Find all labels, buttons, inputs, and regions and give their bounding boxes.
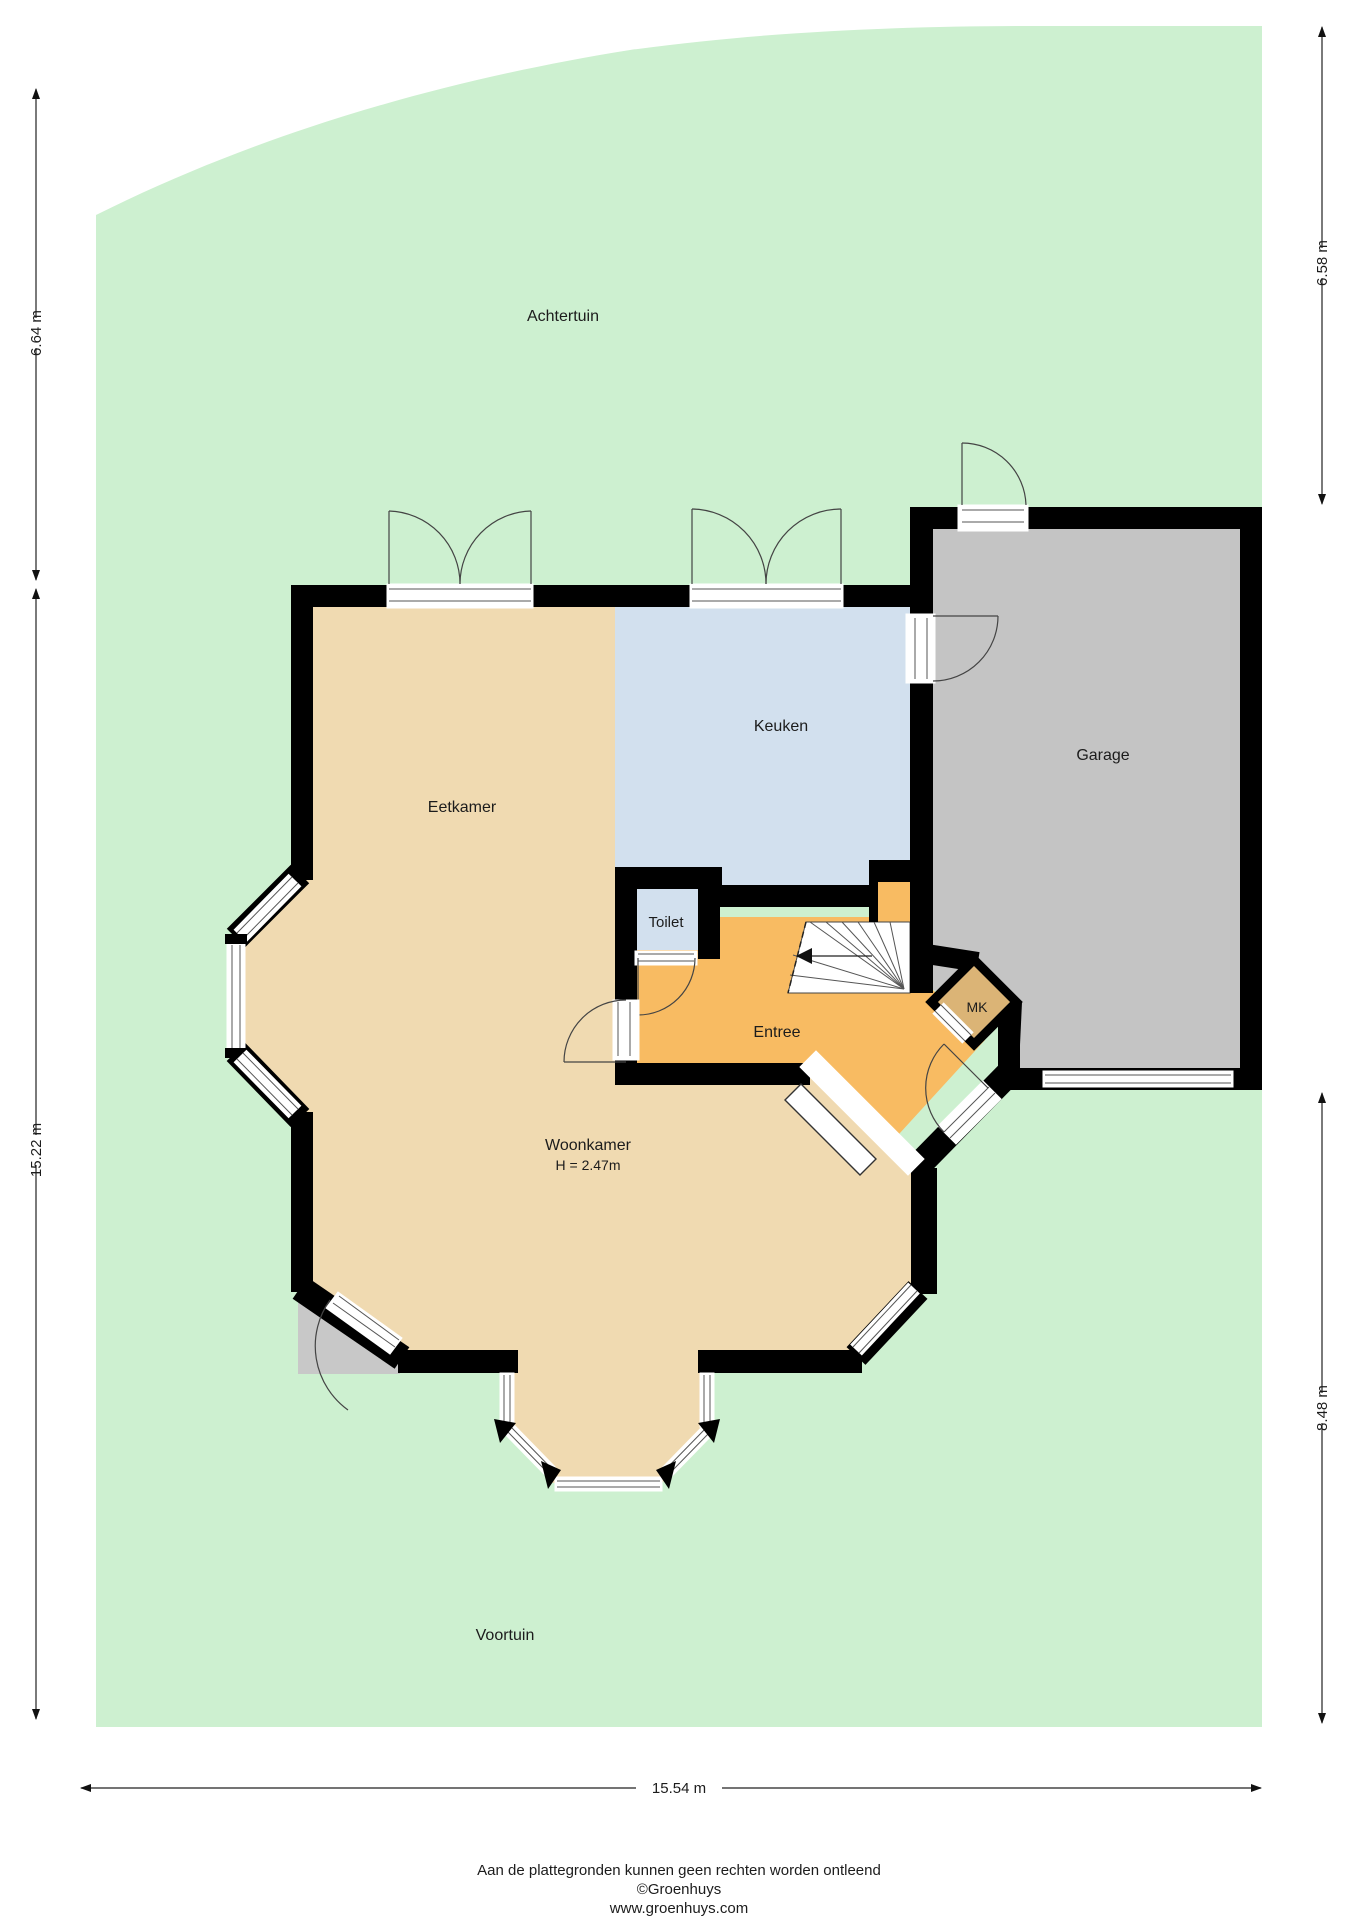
dim-left-upper: 6.64 m	[28, 310, 45, 356]
label-mk: MK	[967, 999, 989, 1015]
dim-right-lower: 8.48 m	[1314, 1385, 1331, 1431]
wall-south-left	[398, 1350, 518, 1373]
floorplan-page: Achtertuin Voortuin Eetkamer Keuken Gara…	[0, 0, 1358, 1920]
dim-right-upper: 6.58 m	[1314, 240, 1331, 286]
dim-left-lower: 15.22 m	[28, 1123, 45, 1177]
footer-website: www.groenhuys.com	[609, 1900, 748, 1917]
label-entree: Entree	[753, 1024, 800, 1041]
floorplan-drawing: Achtertuin Voortuin Eetkamer Keuken Gara…	[0, 0, 1358, 1920]
wall-toilet-right	[698, 867, 720, 959]
room-fill-keuken	[615, 595, 910, 893]
window-bay-right	[700, 1373, 714, 1427]
wall-west-upper	[291, 585, 313, 880]
wall-keuken-garage	[910, 507, 933, 993]
wall-entree-south	[615, 1063, 810, 1085]
label-woonkamer: Woonkamer	[545, 1137, 632, 1154]
window-bay-left	[500, 1373, 514, 1427]
wall-west-lower	[291, 1112, 313, 1292]
label-voortuin: Voortuin	[476, 1627, 535, 1644]
footer: Aan de plattegronden kunnen geen rechten…	[477, 1862, 881, 1917]
window-west-vertical	[225, 934, 247, 1058]
label-toilet: Toilet	[648, 914, 684, 931]
wall-east-woonkamer	[911, 1168, 937, 1294]
footer-disclaimer: Aan de plattegronden kunnen geen rechten…	[477, 1862, 881, 1879]
wall-alcove-left	[869, 882, 878, 922]
footer-copyright: ©Groenhuys	[637, 1881, 721, 1898]
stairs	[788, 922, 910, 993]
window-bay-bottom	[555, 1477, 662, 1491]
window-garage-bottom	[1043, 1071, 1233, 1087]
wall-south-right	[698, 1350, 862, 1373]
label-keuken: Keuken	[754, 718, 808, 735]
label-achtertuin: Achtertuin	[527, 308, 599, 325]
wall-keuken-bottom	[698, 885, 869, 907]
wall-alcove-top	[869, 860, 915, 882]
label-woonkamer-height: H = 2.47m	[556, 1157, 621, 1173]
wall-garage-right	[1240, 507, 1262, 1090]
label-garage: Garage	[1076, 747, 1129, 764]
label-eetkamer: Eetkamer	[428, 799, 497, 816]
dim-bottom: 15.54 m	[652, 1780, 706, 1797]
